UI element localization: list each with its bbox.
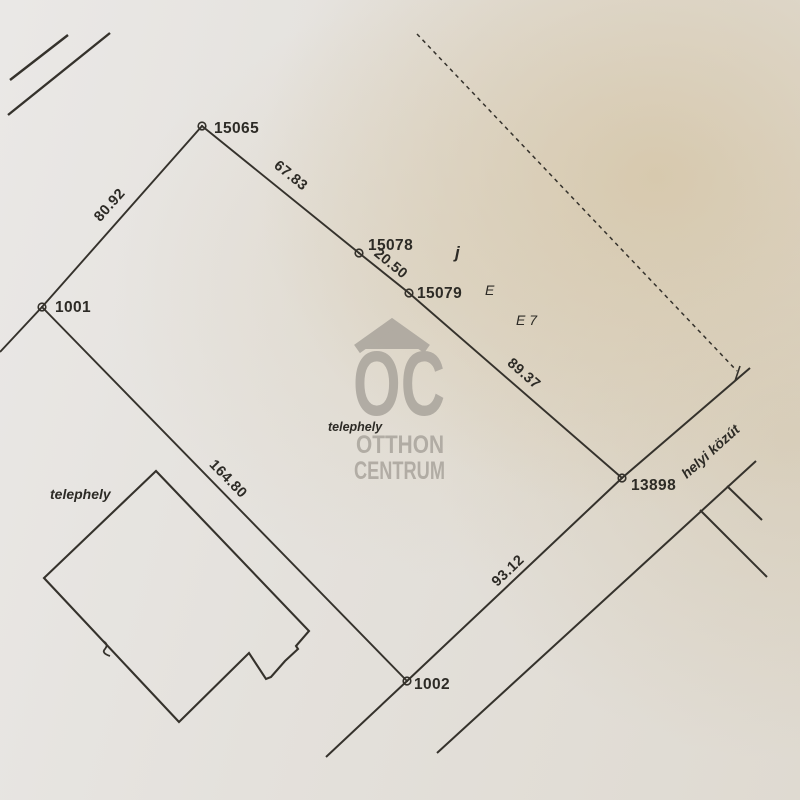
area-label-telephely-left: telephely — [50, 486, 112, 502]
distance-label-1001-15065: 80.92 — [91, 186, 128, 225]
parcel-boundary-north — [0, 126, 622, 478]
point-label-1001: 1001 — [55, 299, 91, 316]
point-label-15079: 15079 — [417, 285, 462, 302]
building-outline — [44, 471, 309, 722]
distance-label-1001-1002: 164.80 — [206, 457, 250, 502]
watermark-line1: OTTHON — [356, 431, 444, 459]
point-label-1002: 1002 — [414, 676, 450, 693]
parcel-letter-j: j — [453, 243, 461, 262]
dashed-boundary-line — [417, 34, 737, 371]
neighbor-boundary-tick-2 — [8, 33, 110, 115]
survey-sketch-page: OC OTTHON CENTRUM — [0, 0, 800, 800]
cadastral-map-canvas: OC OTTHON CENTRUM — [0, 0, 800, 800]
road-side-branch-2 — [700, 510, 767, 577]
road-name-label: helyi közút — [678, 420, 743, 481]
point-label-15065: 15065 — [214, 120, 259, 137]
watermark-logo-group: OC OTTHON CENTRUM — [353, 324, 445, 485]
area-label-telephely-center: telephely — [328, 420, 383, 434]
road-side-branch-1 — [727, 486, 762, 520]
parcel-letter-e: E — [485, 282, 495, 298]
watermark-line2: CENTRUM — [354, 457, 445, 485]
point-label-13898: 13898 — [631, 477, 676, 494]
distance-label-15079-13898: 89.37 — [504, 355, 543, 392]
parcel-letter-e7: E 7 — [516, 312, 538, 328]
distance-label-15065-15078: 67.83 — [271, 158, 311, 195]
